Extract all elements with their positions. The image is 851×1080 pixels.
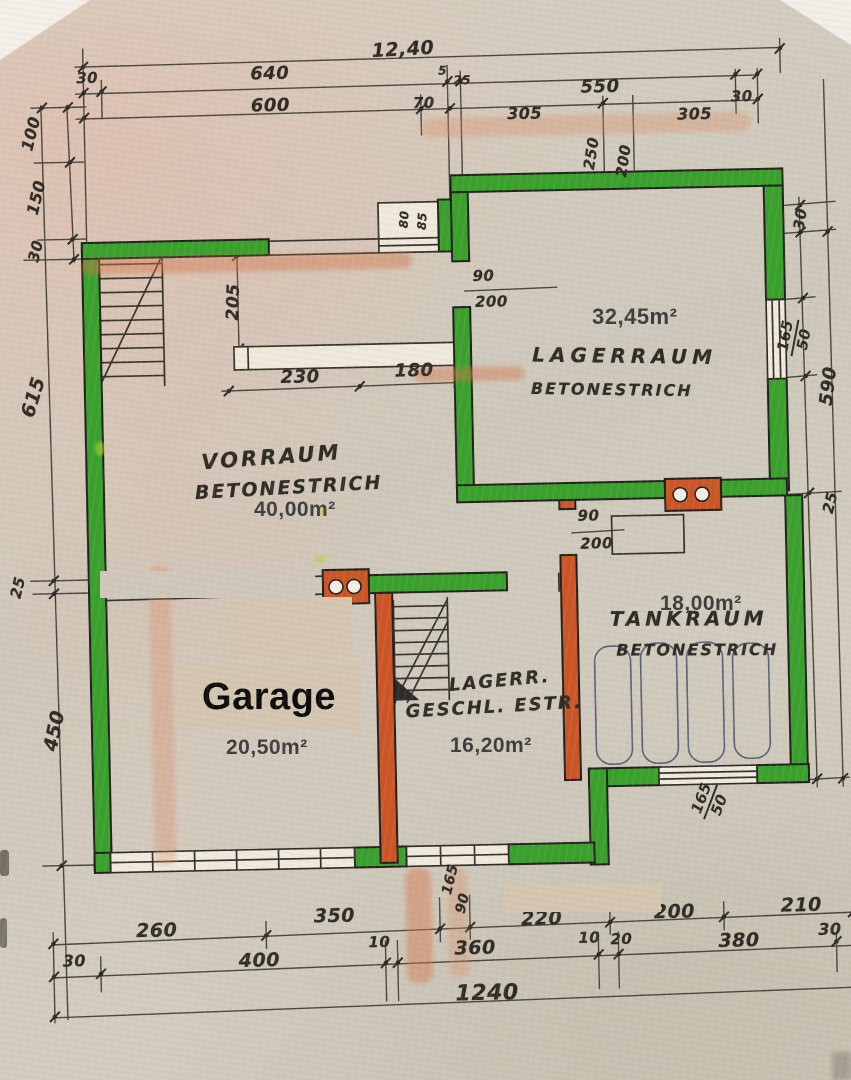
dim-top-5: 5: [438, 63, 447, 77]
wall-middle-green: [367, 572, 507, 593]
drawing-layer: 30 12,40 640 600 70 5 25 550 305 305 30 …: [0, 0, 851, 1080]
dim-b3-total: 1240: [455, 980, 519, 1006]
smudge-streak: [405, 868, 433, 984]
dim-b2-30-right: 30: [818, 919, 842, 938]
wall-lagerraum-right-a: [764, 185, 785, 299]
scan-edge-mark: [0, 918, 7, 948]
dim-top-305-a: 305: [507, 103, 542, 123]
room-label-garage: Garage: [202, 676, 336, 719]
overlay-patch-wall: [100, 571, 315, 598]
wall-lagerraum-bottom-a: [457, 481, 665, 502]
wall-right-outer-lower: [785, 495, 808, 782]
room-floor-lagerraum: BETONESTRICH: [531, 379, 693, 400]
dim-b2-30-left: 30: [63, 951, 87, 970]
dim-top-total: 12,40: [371, 37, 435, 62]
dim-top-30-right: 30: [731, 87, 753, 105]
dim-top-30-left: 30: [76, 69, 98, 87]
dimension-ticks: [30, 42, 851, 1022]
dim-door2-200: 200: [580, 534, 613, 553]
dim-top-640: 640: [250, 63, 290, 85]
dim-door2-90: 90: [577, 506, 599, 524]
dim-niche-80: 80: [397, 210, 412, 229]
dim-mid-180: 180: [394, 360, 434, 382]
highlight-speck: [95, 442, 105, 456]
dim-right-window: 165 50: [774, 316, 815, 359]
dim-b2-20: 20: [610, 930, 632, 948]
dim-b2-10-a: 10: [368, 933, 390, 951]
overlay-patch-blank: [228, 597, 352, 659]
area-tankraum: 18,00m²: [660, 592, 742, 616]
dim-b1-210: 210: [781, 894, 823, 917]
dim-right-30: 30: [790, 207, 811, 231]
stair-middle: [393, 598, 449, 703]
dim-top-70: 70: [413, 94, 435, 112]
floorplan-scan: 30 12,40 640 600 70 5 25 550 305 305 30 …: [0, 0, 851, 1080]
wall-lagerraum-left-a: [451, 192, 469, 261]
door-leaf: [612, 515, 685, 554]
room-floor-tankraum: BETONESTRICH: [616, 640, 778, 660]
dim-b2-400: 400: [239, 949, 281, 972]
dim-b1-350: 350: [314, 905, 356, 928]
overlay-patch-garage: Garage: [178, 664, 360, 730]
dim-top-550: 550: [580, 76, 620, 98]
dim-mid-230: 230: [280, 366, 320, 388]
dim-b2-360: 360: [454, 937, 496, 960]
wall-left-outer: [82, 250, 112, 870]
wall-lagerraum-bottom-b: [721, 478, 787, 496]
dim-b2-10-b: 10: [578, 928, 600, 946]
wall-tankraum-bottom-b: [757, 764, 809, 783]
overlay-patch-bottom: [505, 884, 661, 912]
dim-door1-90: 90: [472, 266, 494, 284]
wall-lagerraum-left-b: [453, 307, 474, 487]
dim-niche-85: 85: [415, 212, 430, 231]
wall-tankraum-left-b: [560, 555, 581, 780]
wall-lagerraum-right-b: [768, 378, 789, 490]
dim-b1-260: 260: [136, 919, 178, 942]
stair-upper-left: [98, 257, 165, 386]
area-lager-geschl: 16,20m²: [450, 734, 532, 758]
room-label-lagerraum: LAGERRAUM: [532, 342, 717, 369]
dim-mid-205: 205: [223, 283, 244, 321]
dim-top-25: 25: [453, 73, 471, 87]
dim-top-600: 600: [251, 95, 291, 117]
dim-door1-200: 200: [475, 292, 508, 311]
dim-top-305-b: 305: [677, 104, 712, 124]
wall-tankraum-left-a: [559, 500, 575, 509]
area-garage: 20,50m²: [226, 736, 308, 760]
area-vorraum: 40,00m²: [254, 498, 336, 522]
wall-bottom-a: [94, 853, 110, 873]
dim-b2-380: 380: [718, 929, 760, 952]
wall-bottom-c: [508, 843, 594, 865]
area-lagerraum: 32,45m²: [592, 304, 677, 330]
